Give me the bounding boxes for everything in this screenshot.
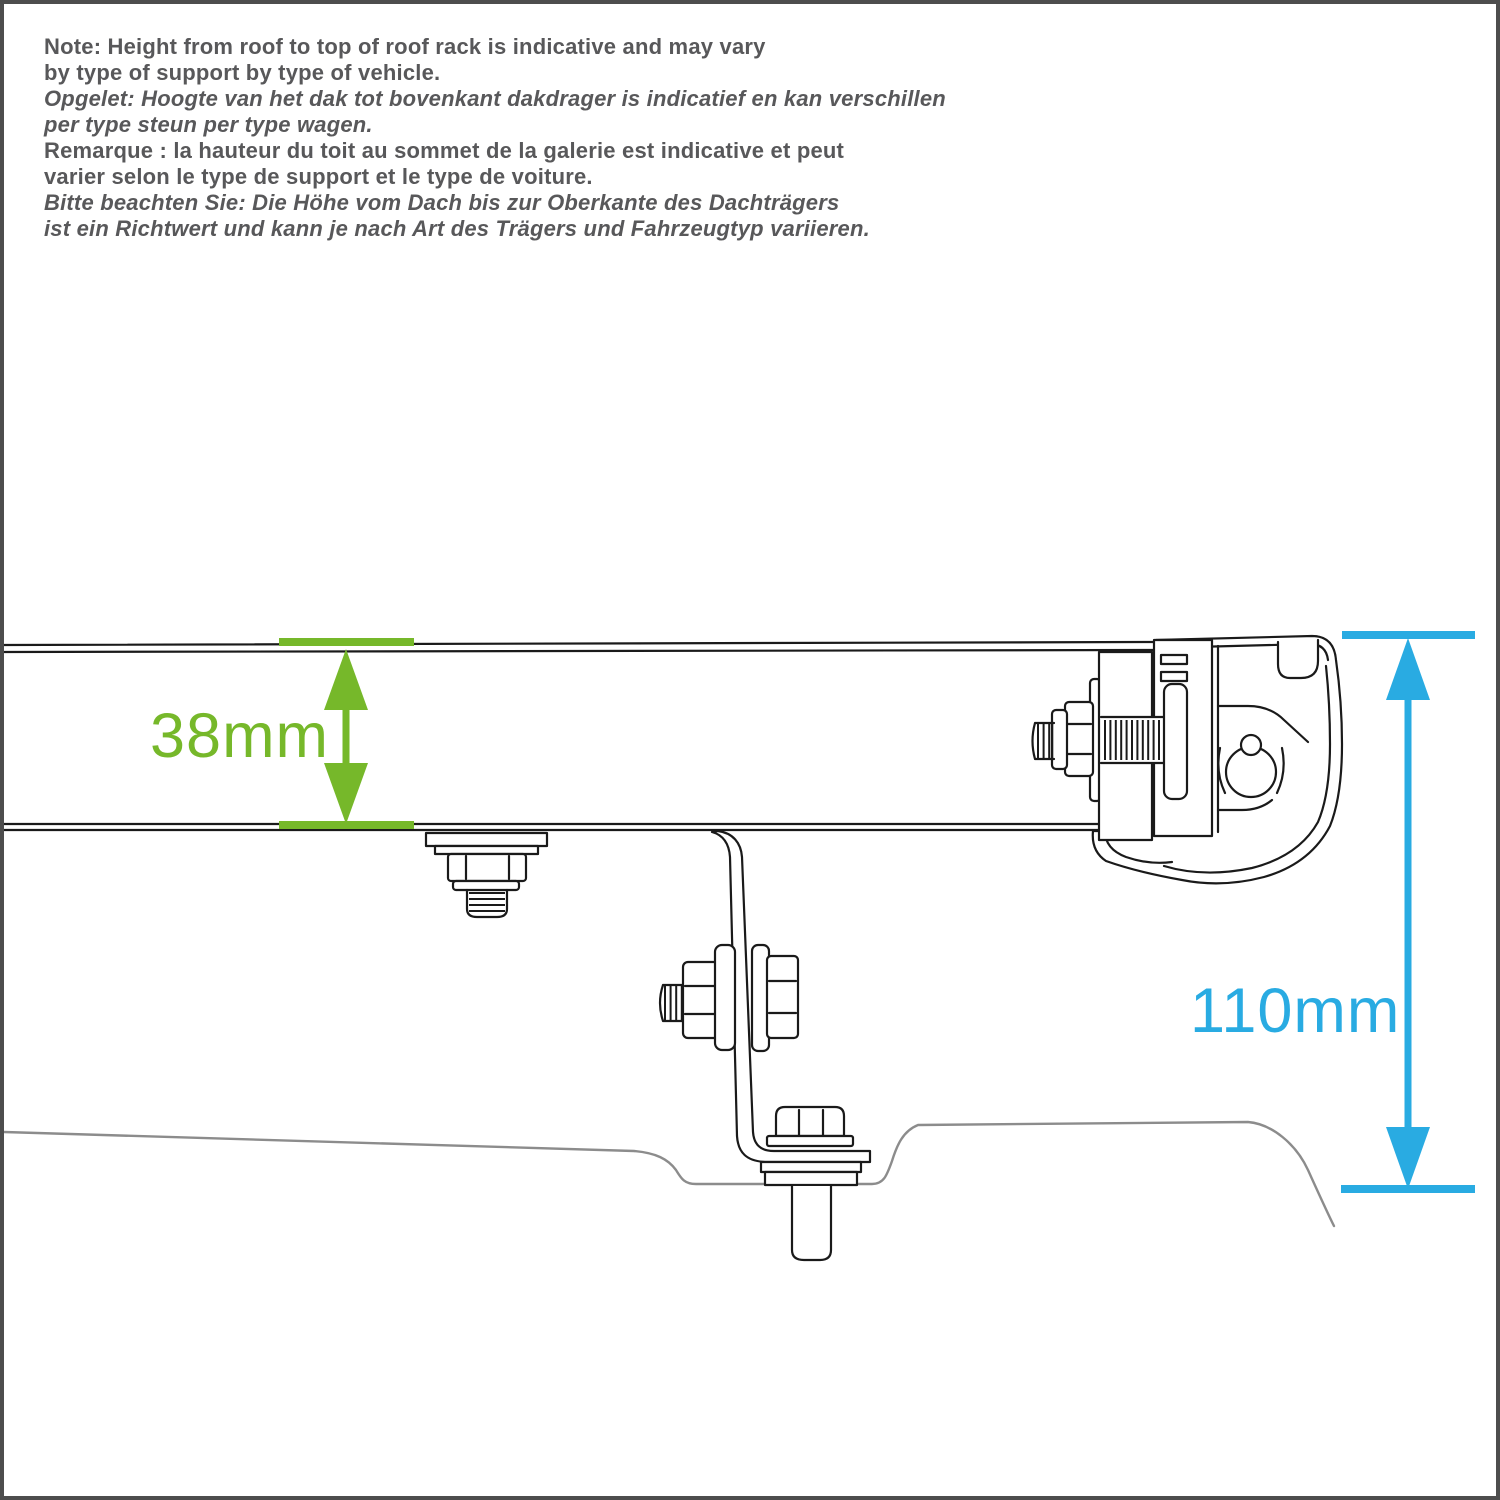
dim-arrow-shaft [1405,692,1412,1132]
bolt-head [767,956,798,1038]
note-line-nl-1: Opgelet: Hoogte van het dak tot bovenkan… [44,86,946,112]
dim-arrowhead-down [1386,1127,1430,1189]
note-line-de-1: Bitte beachten Sie: Die Höhe vom Dach bi… [44,190,946,216]
washer [715,945,735,1050]
mounting-bracket [426,831,870,1260]
washer [1164,684,1187,799]
dim-tick-top [279,638,414,646]
note-line-en-2: by type of support by type of vehicle. [44,60,946,86]
bracket-spacer-plate [761,1162,861,1172]
underbar-stud-assembly [426,833,547,917]
dim-arrow-shaft [343,702,350,768]
label-38mm: 38mm [150,701,329,771]
foot-hex-bolt [767,1107,853,1146]
leg-bolt-assembly [660,945,798,1051]
vehicle-roof-line [4,1122,1334,1226]
dimension-110mm [1341,631,1475,1193]
technical-drawing-page: Note: Height from roof to top of roof ra… [0,0,1500,1500]
note-line-fr-1: Remarque : la hauteur du toit au sommet … [44,138,946,164]
dim-arrowhead-up [1386,638,1430,700]
roof-stud-thread [792,1186,831,1260]
dim-arrowhead-up [324,649,368,710]
note-line-fr-2: varier selon le type de support et le ty… [44,164,946,190]
label-110mm: 110mm [1190,976,1400,1046]
note-line-nl-2: per type steun per type wagen. [44,112,946,138]
hex-nut [448,854,526,881]
note-text-block: Note: Height from roof to top of roof ra… [44,34,946,242]
note-line-en-1: Note: Height from roof to top of roof ra… [44,34,946,60]
note-line-de-2: ist ein Richtwert und kann je nach Art d… [44,216,946,242]
dim-arrowhead-down [324,763,368,824]
dim-tick-top [1342,631,1475,639]
hex-nut [1065,702,1093,776]
bracket-roof-pad [765,1172,857,1185]
